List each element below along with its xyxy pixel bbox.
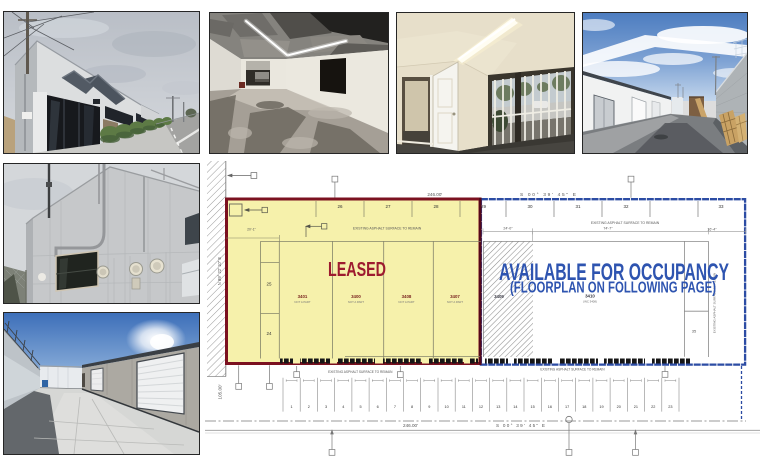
- svg-text:33: 33: [718, 204, 724, 209]
- svg-text:3408: 3408: [402, 294, 412, 299]
- svg-text:16'-4": 16'-4": [707, 228, 717, 232]
- svg-text:12: 12: [479, 405, 483, 409]
- svg-text:3401: 3401: [298, 294, 308, 299]
- svg-text:(FLOORPLAN ON FOLLOWING PAGE): (FLOORPLAN ON FOLLOWING PAGE): [510, 280, 716, 297]
- svg-text:EXISTING ASPHALT SURFACE TO RE: EXISTING ASPHALT SURFACE TO REMAIN: [540, 368, 605, 372]
- svg-text:14: 14: [513, 405, 517, 409]
- svg-text:NOT A PART: NOT A PART: [398, 300, 414, 304]
- svg-text:8: 8: [411, 405, 413, 409]
- svg-text:NOT A PART: NOT A PART: [294, 300, 310, 304]
- svg-text:30: 30: [527, 204, 533, 209]
- svg-text:3: 3: [325, 405, 327, 409]
- svg-text:11: 11: [462, 405, 466, 409]
- svg-text:20'-1": 20'-1": [247, 227, 256, 231]
- svg-text:6: 6: [377, 405, 379, 409]
- svg-text:31: 31: [575, 204, 581, 209]
- svg-text:28: 28: [433, 204, 439, 209]
- svg-text:105.00': 105.00': [218, 384, 223, 399]
- svg-text:25: 25: [266, 282, 272, 287]
- svg-text:24'-0": 24'-0": [503, 227, 513, 231]
- svg-text:32: 32: [623, 204, 629, 209]
- svg-text:N 89° 22' 10" E: N 89° 22' 10" E: [217, 257, 222, 286]
- svg-text:NOT A PART: NOT A PART: [447, 300, 463, 304]
- svg-text:18: 18: [582, 405, 586, 409]
- svg-text:S 00° 39' 45" E: S 00° 39' 45" E: [520, 192, 576, 198]
- svg-text:15: 15: [530, 405, 534, 409]
- svg-text:NOT A PART: NOT A PART: [348, 300, 364, 304]
- svg-text:20: 20: [617, 405, 621, 409]
- svg-text:16: 16: [548, 405, 552, 409]
- svg-text:1: 1: [291, 405, 293, 409]
- svg-text:246.00': 246.00': [403, 423, 418, 428]
- svg-text:3409: 3409: [494, 294, 504, 299]
- svg-text:9: 9: [428, 405, 430, 409]
- svg-text:27: 27: [385, 204, 391, 209]
- svg-text:5: 5: [359, 405, 361, 409]
- svg-text:19: 19: [599, 405, 603, 409]
- svg-text:2: 2: [308, 405, 310, 409]
- svg-text:21: 21: [634, 405, 638, 409]
- svg-text:10: 10: [444, 405, 448, 409]
- svg-text:EXISTING ASPHALT SURFACE TO RE: EXISTING ASPHALT SURFACE TO REMAIN: [353, 226, 422, 230]
- svg-text:7: 7: [394, 405, 396, 409]
- svg-text:S 00° 39' 45" E: S 00° 39' 45" E: [496, 423, 545, 428]
- svg-text:29: 29: [481, 204, 487, 209]
- svg-text:13: 13: [496, 405, 500, 409]
- svg-text:EXISTING ASPHALT SURFACE TO RE: EXISTING ASPHALT SURFACE TO REMAIN: [328, 370, 393, 374]
- svg-text:24: 24: [266, 331, 272, 336]
- svg-text:246.00': 246.00': [427, 192, 442, 197]
- svg-text:3407: 3407: [450, 294, 460, 299]
- svg-text:22: 22: [651, 405, 655, 409]
- svg-text:17: 17: [565, 405, 569, 409]
- svg-text:EXISTING ASPHALT SURFACE TO RE: EXISTING ASPHALT SURFACE TO REMAIN: [591, 221, 660, 225]
- svg-text:3400: 3400: [351, 294, 361, 299]
- svg-text:4: 4: [342, 405, 344, 409]
- svg-text:35: 35: [692, 329, 697, 334]
- svg-text:23: 23: [668, 405, 672, 409]
- svg-text:74'-7": 74'-7": [603, 227, 613, 231]
- svg-text:26: 26: [337, 204, 343, 209]
- svg-text:LEASED: LEASED: [328, 258, 386, 281]
- svg-text:(INC 3408): (INC 3408): [583, 300, 597, 304]
